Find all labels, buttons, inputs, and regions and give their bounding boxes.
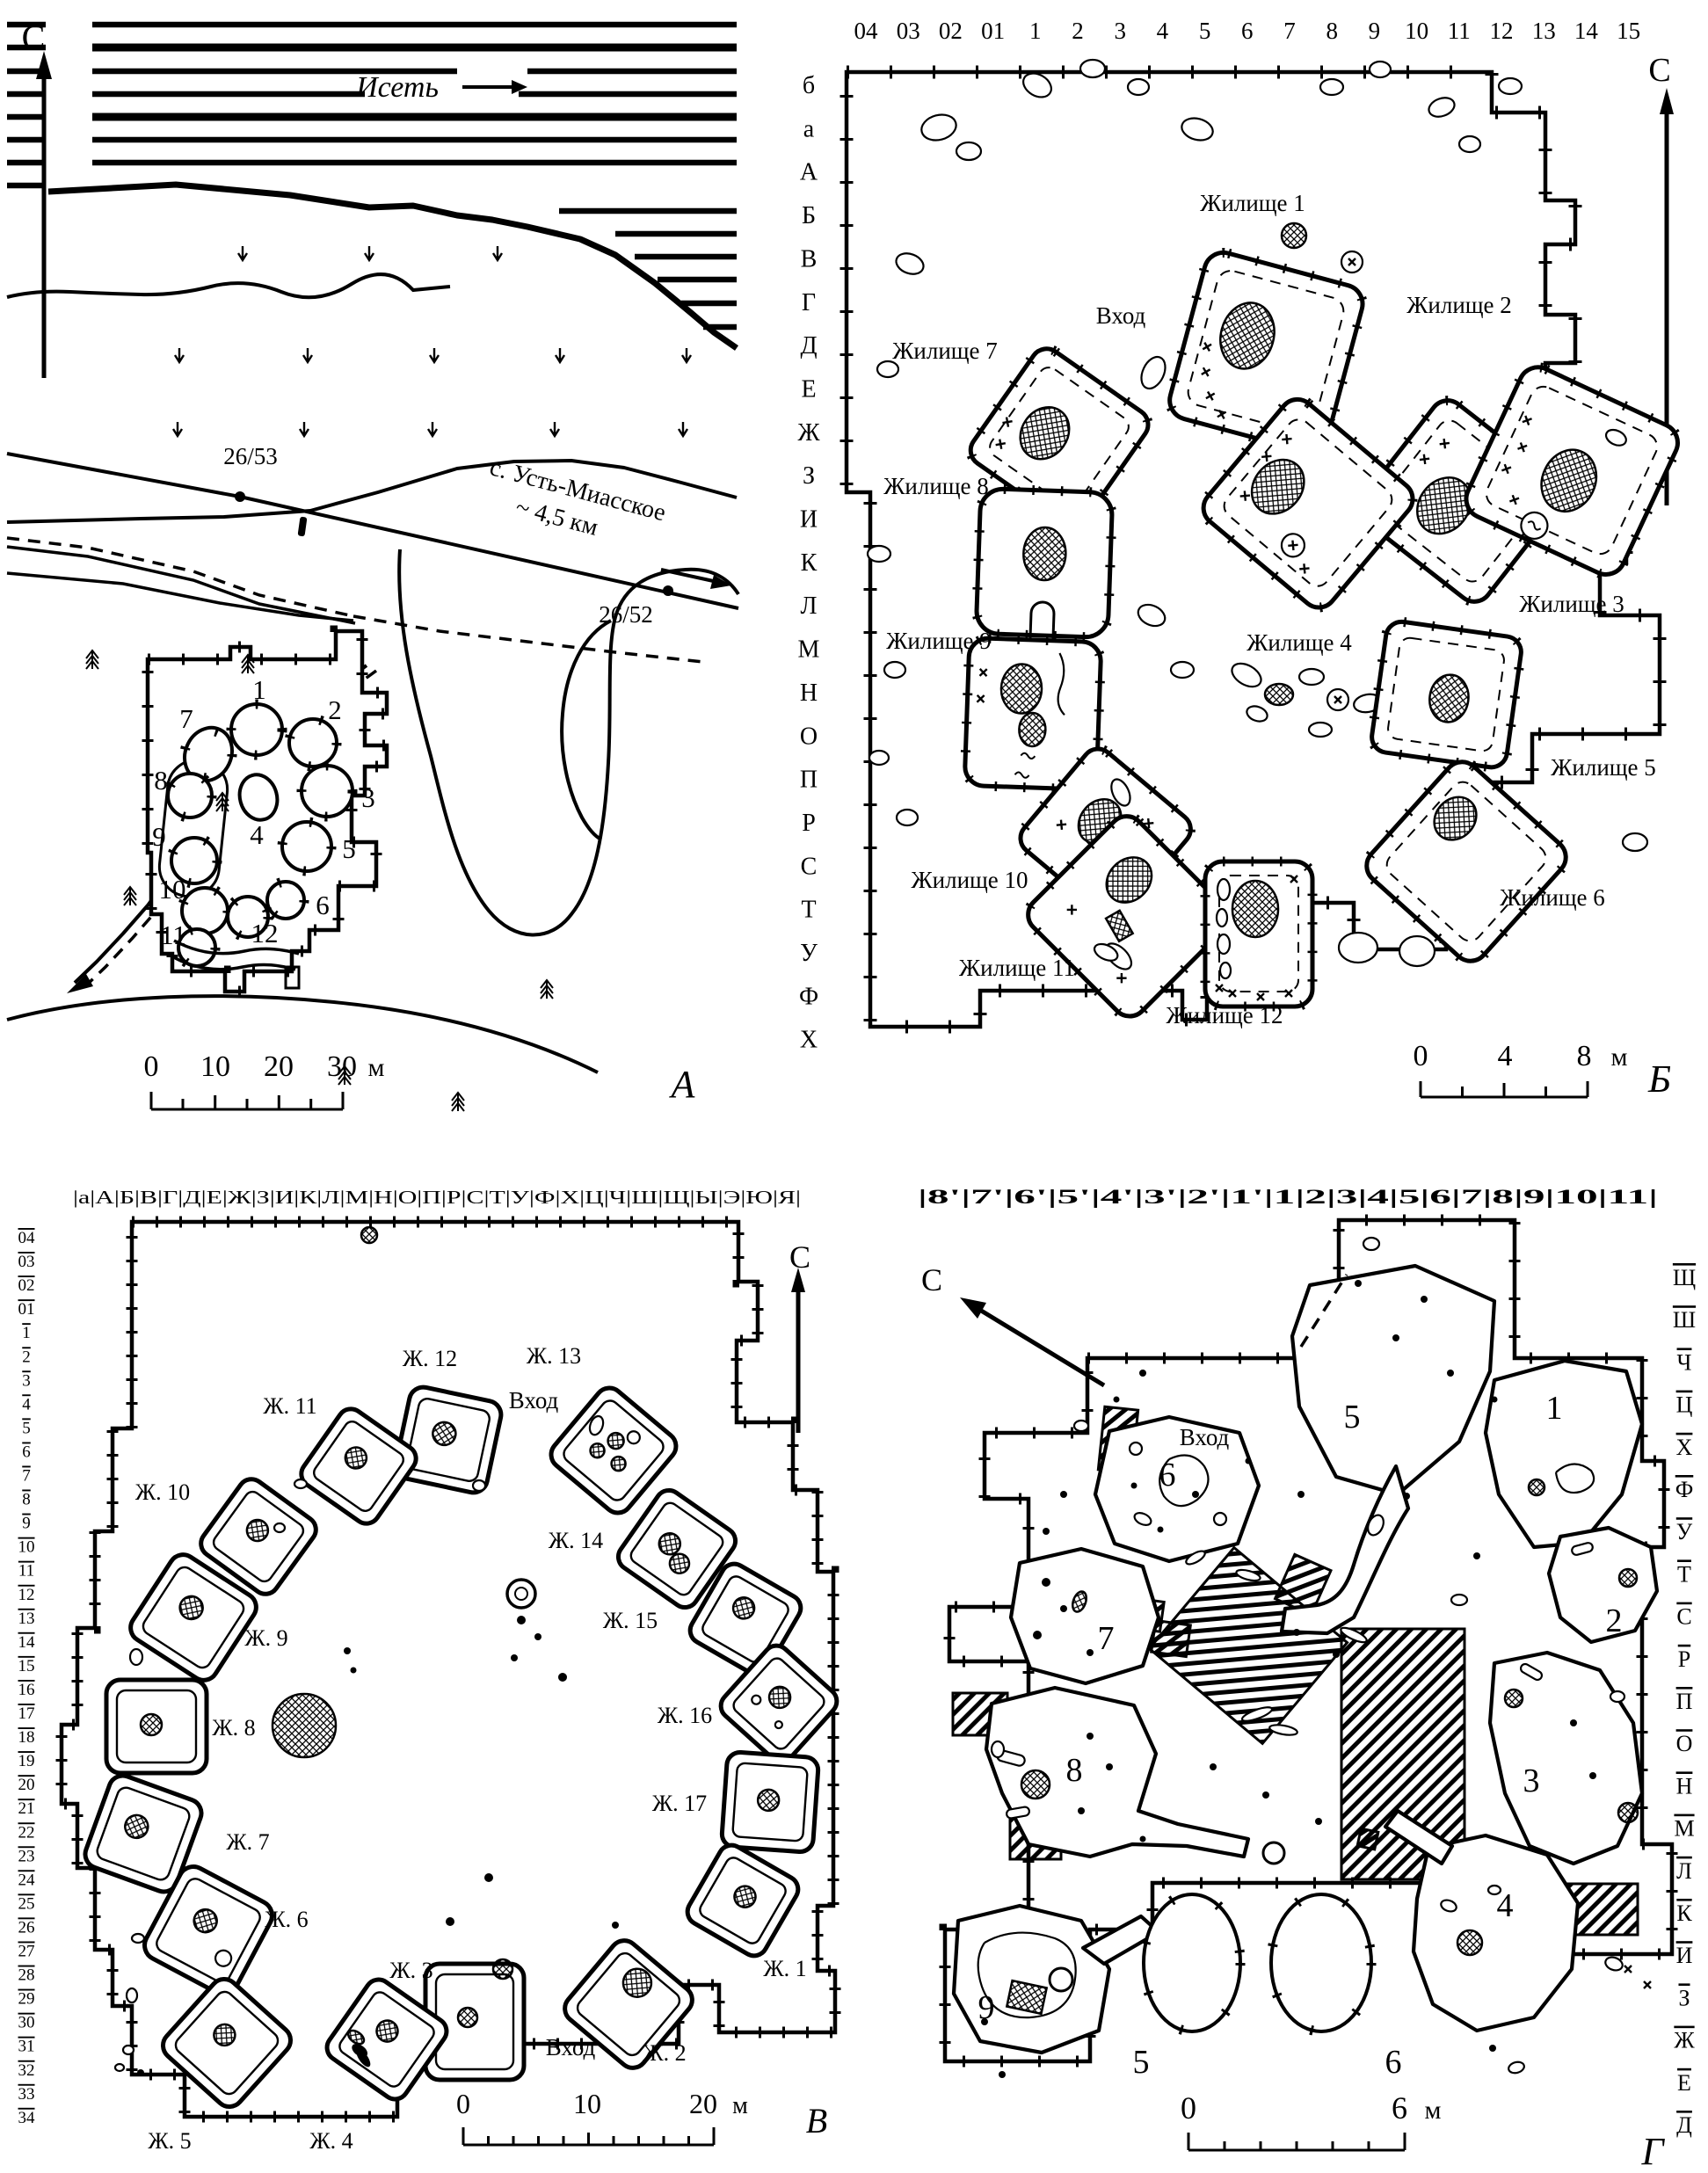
svg-text:0: 0	[456, 2088, 470, 2119]
svg-text:Жилище 7: Жилище 7	[892, 338, 998, 364]
grid-row-label: 21	[18, 1799, 35, 1818]
grid-row-label: 4	[22, 1395, 31, 1414]
grid-row-label: 9	[22, 1515, 31, 1533]
grid-row-label: 32	[18, 2061, 35, 2080]
grid-row-label: 12	[18, 1586, 35, 1604]
svg-text:Ж. 15: Ж. 15	[603, 1608, 658, 1633]
svg-text:5: 5	[342, 833, 356, 864]
entrance-label-g: Вход	[1180, 1424, 1230, 1450]
svg-text:Ж. 13: Ж. 13	[527, 1343, 581, 1369]
dwelling-v17	[721, 1752, 818, 1853]
grid-row-label: 15	[18, 1657, 35, 1675]
svg-text:1: 1	[1546, 1390, 1563, 1427]
north-arrow-v: С	[789, 1239, 810, 1433]
svg-text:2: 2	[328, 694, 342, 725]
svg-text:0: 0	[1181, 2090, 1196, 2126]
pit-label-5: 5	[1133, 2044, 1150, 2081]
svg-text:Жилище 2: Жилище 2	[1406, 292, 1512, 318]
svg-text:Ж. 10: Ж. 10	[135, 1479, 190, 1505]
grid-row-label: 13	[18, 1610, 35, 1628]
svg-text:10: 10	[159, 874, 186, 905]
roads-a	[7, 454, 738, 993]
dwelling-b5	[1370, 620, 1523, 769]
dwelling-v8	[106, 1680, 207, 1773]
svg-text:1: 1	[252, 674, 266, 705]
grid-row-label: 22	[18, 1823, 35, 1842]
grid-row-label: 25	[18, 1894, 35, 1913]
grid-row-label: Д	[800, 332, 817, 360]
svg-text:12: 12	[251, 918, 279, 948]
grid-col-label: 1	[1029, 18, 1042, 44]
grid-row-label: У	[800, 940, 818, 967]
benchmark-dot-2653	[235, 491, 245, 502]
panel-a-letter: А	[669, 1063, 696, 1106]
svg-text:3: 3	[361, 782, 375, 813]
grid-row-label: Ш	[1673, 1307, 1696, 1333]
grid-col-label: 10	[1405, 18, 1428, 44]
grid-row-label: Р	[802, 810, 816, 837]
panel-g: |8'|7'|6'|5'|4'|3'|2'|1'|1|2|3|4|5|6|7|8…	[918, 1186, 1696, 2173]
grid-col-label: 04	[854, 18, 879, 44]
grid-row-label: Л	[1676, 1858, 1692, 1884]
svg-text:Ж. 12: Ж. 12	[403, 1346, 457, 1371]
svg-text:Ж. 4: Ж. 4	[309, 2128, 353, 2154]
svg-text:10: 10	[200, 1050, 230, 1083]
svg-text:6: 6	[316, 890, 330, 920]
grid-row-label: 19	[18, 1752, 35, 1770]
grid-row-label: О	[1676, 1731, 1693, 1756]
svg-text:Жилище 4: Жилище 4	[1246, 629, 1352, 656]
grid-row-label: 02	[18, 1276, 35, 1295]
grid-col-label: 4	[1157, 18, 1169, 44]
svg-text:2: 2	[1606, 1602, 1623, 1639]
svg-text:0: 0	[1414, 1040, 1428, 1072]
svg-text:Жилище 12: Жилище 12	[1166, 1002, 1283, 1028]
grid-row-label: Щ	[1673, 1265, 1696, 1290]
entrance-label-b: Вход	[1096, 302, 1146, 329]
grid-col-label: 15	[1617, 18, 1640, 44]
grid-col-label: 13	[1532, 18, 1556, 44]
panel-a: С Исеть 26/53 26/52 с. Усть-Миасское ~ 4…	[7, 18, 738, 1111]
svg-text:6: 6	[1392, 2090, 1407, 2126]
grid-row-label: Л	[801, 592, 818, 620]
grid-row-label: 30	[18, 2014, 35, 2032]
grid-row-label: З	[1678, 1985, 1690, 2010]
svg-text:Ж. 17: Ж. 17	[652, 1791, 707, 1816]
svg-text:7: 7	[1098, 1620, 1115, 1657]
grid-row-label: О	[800, 723, 818, 750]
grid-row-label: Ц	[1676, 1392, 1693, 1418]
grid-row-label: Ж	[797, 419, 820, 447]
grid-row-label: В	[801, 245, 818, 273]
large-burnt-spot	[273, 1694, 336, 1757]
svg-text:10: 10	[573, 2088, 601, 2119]
svg-text:8: 8	[1577, 1040, 1592, 1072]
scale-bar-v: 0 10 20 м	[456, 2088, 748, 2145]
svg-text:Ж. 7: Ж. 7	[226, 1829, 269, 1855]
svg-text:4: 4	[1498, 1040, 1513, 1072]
svg-text:Ж. 8: Ж. 8	[212, 1715, 255, 1741]
grid-row-label: 7	[22, 1467, 31, 1486]
svg-text:Жилище 10: Жилище 10	[911, 867, 1028, 893]
grid-row-label: 14	[18, 1633, 36, 1652]
svg-text:Ж. 5: Ж. 5	[148, 2128, 191, 2154]
grid-row-label: 04	[18, 1229, 36, 1247]
svg-text:Жилище 8: Жилище 8	[883, 473, 989, 499]
grid-col-label: 8	[1326, 18, 1338, 44]
grid-row-label: К	[801, 549, 818, 577]
north-label-a: С	[22, 18, 46, 57]
grid-row-label: 1	[22, 1324, 31, 1342]
grid-col-label: 02	[939, 18, 963, 44]
river-hatching	[7, 25, 737, 327]
entrance-bottom-label-v: Вход	[546, 2034, 596, 2060]
svg-text:Жилище 6: Жилище 6	[1500, 884, 1605, 911]
grid-row-label: П	[800, 767, 818, 794]
svg-text:4: 4	[1497, 1887, 1514, 1924]
grid-row-label: 29	[18, 1990, 35, 2009]
grid-columns-v: |а|А|Б|В|Г|Д|Е|Ж|З|И|К|Л|М|Н|О|П|Р|С|Т|У…	[73, 1187, 801, 1208]
grid-col-label: 9	[1369, 18, 1381, 44]
panel-b: 04030201123456789101112131415 баАБВГДЕЖЗ…	[797, 18, 1683, 1101]
svg-text:4: 4	[250, 819, 264, 850]
grid-row-label: 23	[18, 1847, 35, 1865]
dwelling-b12	[1205, 861, 1312, 1007]
grid-row-label: У	[1676, 1519, 1693, 1544]
grid-row-label: 18	[18, 1728, 35, 1747]
grid-rows-v: 0403020112345678910111213141516171819202…	[18, 1229, 36, 2127]
north-label-g: С	[921, 1262, 942, 1297]
grid-row-label: Е	[1677, 2070, 1691, 2096]
panel-b-letter: Б	[1647, 1057, 1671, 1101]
grid-row-label: б	[803, 72, 815, 99]
grid-row-label: а	[803, 115, 815, 142]
meadow-symbols	[173, 246, 691, 436]
grid-row-label: 03	[18, 1253, 35, 1271]
grid-col-label: 7	[1283, 18, 1296, 44]
grid-row-label: Е	[801, 375, 816, 403]
svg-text:Ж. 16: Ж. 16	[658, 1703, 712, 1728]
svg-text:30: 30	[327, 1050, 357, 1083]
svg-text:6: 6	[1159, 1457, 1176, 1493]
panel-g-letter: Г	[1640, 2130, 1665, 2173]
scale-bar-b: 0 4 8 м	[1414, 1040, 1628, 1097]
svg-text:8: 8	[1066, 1752, 1083, 1789]
grid-row-label: И	[800, 506, 818, 534]
grid-row-label: Т	[801, 897, 816, 924]
north-arrow-g: С	[921, 1262, 1104, 1385]
grid-row-label: Ф	[1675, 1477, 1694, 1502]
grid-row-label: 01	[18, 1300, 35, 1319]
svg-text:Ж. 9: Ж. 9	[244, 1625, 287, 1651]
grid-row-label: 3	[22, 1371, 31, 1390]
svg-text:Ж. 6: Ж. 6	[265, 1907, 308, 1932]
pit-label-6: 6	[1385, 2044, 1402, 2081]
grid-rows-b: баАБВГДЕЖЗИКЛМНОПРСТУФХ	[797, 72, 820, 1054]
grid-row-label: 26	[18, 1918, 35, 1937]
grid-row-label: Д	[1676, 2112, 1692, 2138]
grid-row-label: 5	[22, 1419, 31, 1437]
grid-row-label: 11	[18, 1562, 34, 1581]
north-label-v: С	[789, 1239, 810, 1275]
grid-row-label: 24	[18, 1871, 36, 1889]
grid-row-label: К	[1676, 1900, 1692, 1926]
dwelling-g7	[1011, 1549, 1159, 1683]
svg-text:8: 8	[154, 765, 168, 796]
scale-bar-a: 0 10 20 30 м	[144, 1050, 385, 1109]
grid-col-label: 2	[1072, 18, 1084, 44]
svg-text:м: м	[1611, 1043, 1628, 1072]
figure-canvas: С Исеть 26/53 26/52 с. Усть-Миасское ~ 4…	[0, 0, 1708, 2173]
grid-row-label: Н	[800, 680, 818, 707]
svg-text:Ж. 14: Ж. 14	[549, 1528, 603, 1553]
svg-text:Жилище 11: Жилище 11	[959, 955, 1075, 981]
panel-v: |а|А|Б|В|Г|Д|Е|Ж|З|И|К|Л|М|Н|О|П|Р|С|Т|У…	[18, 1187, 843, 2154]
north-label-b: С	[1648, 52, 1670, 89]
pit-ovals	[1144, 1894, 1371, 2031]
svg-text:м: м	[732, 2092, 748, 2119]
grid-row-label: Х	[1676, 1435, 1693, 1460]
grid-row-label: Г	[802, 289, 816, 316]
svg-text:20: 20	[264, 1050, 294, 1083]
grid-columns-b: 04030201123456789101112131415	[854, 18, 1641, 44]
grid-col-label: 6	[1241, 18, 1254, 44]
benchmark-upper-label: 26/53	[223, 443, 278, 469]
dwelling-g6	[1095, 1417, 1259, 1561]
svg-text:Ж. 2: Ж. 2	[643, 2040, 686, 2066]
dwelling-g9	[954, 1906, 1159, 2053]
village-label: с. Усть-Миасское ~ 4,5 км	[478, 454, 668, 557]
grid-row-label: 2	[22, 1348, 31, 1366]
grid-row-label: 27	[18, 1943, 35, 1961]
grid-col-label: 3	[1114, 18, 1126, 44]
grid-col-label: 03	[897, 18, 920, 44]
grid-row-label: Ч	[1677, 1349, 1692, 1375]
svg-text:11: 11	[160, 919, 186, 950]
svg-text:Жилище 3: Жилище 3	[1519, 591, 1624, 617]
grid-row-label: 6	[22, 1443, 31, 1462]
grid-row-label: И	[1676, 1943, 1693, 1968]
svg-text:м: м	[368, 1053, 385, 1082]
grid-row-label: 28	[18, 1966, 35, 1985]
grid-row-label: Т	[1677, 1561, 1691, 1587]
grid-col-label: 12	[1490, 18, 1514, 44]
grid-row-label: 17	[18, 1704, 35, 1723]
dwelling-b8	[976, 488, 1113, 648]
svg-text:5: 5	[1344, 1399, 1361, 1435]
grid-row-label: 16	[18, 1681, 35, 1699]
grid-row-label: Р	[1678, 1646, 1690, 1672]
grid-row-label: Х	[800, 1027, 818, 1054]
svg-text:9: 9	[152, 821, 166, 852]
scale-bar-g: 0 6 м	[1181, 2090, 1442, 2150]
svg-text:Жилище 5: Жилище 5	[1551, 754, 1656, 781]
grid-row-label: М	[1674, 1816, 1694, 1842]
svg-text:Ж. 1: Ж. 1	[763, 1956, 806, 1981]
grid-row-label: Ф	[799, 983, 818, 1010]
grid-row-label: 10	[18, 1538, 35, 1557]
grid-row-label: С	[801, 853, 818, 880]
svg-text:3: 3	[1523, 1762, 1540, 1799]
grid-col-label: 14	[1574, 18, 1599, 44]
svg-text:Жилище 9: Жилище 9	[886, 628, 992, 654]
grid-row-label: 8	[22, 1491, 31, 1509]
svg-text:7: 7	[179, 703, 193, 734]
grid-row-label: 31	[18, 2038, 35, 2056]
panel-v-letter: В	[806, 2101, 827, 2140]
svg-text:Ж. 3: Ж. 3	[389, 1958, 432, 1983]
grid-row-label: З	[803, 462, 815, 490]
grid-row-label: М	[798, 636, 820, 664]
grid-row-label: Б	[802, 202, 816, 229]
grid-row-label: 20	[18, 1776, 35, 1794]
benchmark-dot-2652	[663, 585, 673, 596]
terrace-line	[7, 274, 450, 297]
grid-row-label: 34	[18, 2109, 36, 2127]
river-name: Исеть	[355, 71, 439, 104]
svg-text:м: м	[1425, 2096, 1442, 2125]
svg-text:9: 9	[978, 1989, 995, 2026]
grid-row-label: П	[1676, 1689, 1693, 1714]
dwelling-v12	[393, 1384, 504, 1495]
grid-row-label: С	[1676, 1604, 1691, 1630]
grid-col-label: 5	[1199, 18, 1211, 44]
grid-row-label: А	[800, 159, 818, 186]
grid-col-label: 11	[1448, 18, 1471, 44]
grid-row-label: 33	[18, 2085, 35, 2104]
svg-text:20: 20	[689, 2088, 717, 2119]
svg-text:Жилище 1: Жилище 1	[1200, 190, 1305, 216]
river-label: Исеть	[355, 71, 527, 104]
grid-row-label: Ж	[1674, 2028, 1695, 2053]
svg-text:0: 0	[144, 1050, 159, 1083]
grid-row-label: Н	[1676, 1773, 1693, 1799]
svg-text:Ж. 11: Ж. 11	[263, 1393, 316, 1419]
grid-col-label: 01	[981, 18, 1005, 44]
grid-rows-g: ЩШЧЦХФУТСРПОНМЛКИЗЖЕД	[1673, 1265, 1696, 2138]
grid-columns-g: |8'|7'|6'|5'|4'|3'|2'|1'|1|2|3|4|5|6|7|8…	[918, 1186, 1658, 1208]
entrance-top-label-v: Вход	[509, 1387, 559, 1414]
